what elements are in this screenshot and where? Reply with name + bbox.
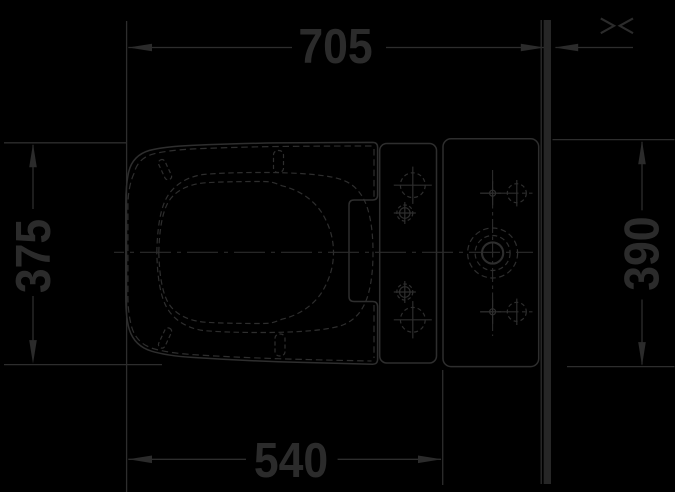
- svg-text:705: 705: [298, 19, 372, 73]
- svg-text:390: 390: [615, 216, 669, 290]
- svg-text:540: 540: [254, 433, 328, 487]
- svg-text:375: 375: [6, 219, 60, 293]
